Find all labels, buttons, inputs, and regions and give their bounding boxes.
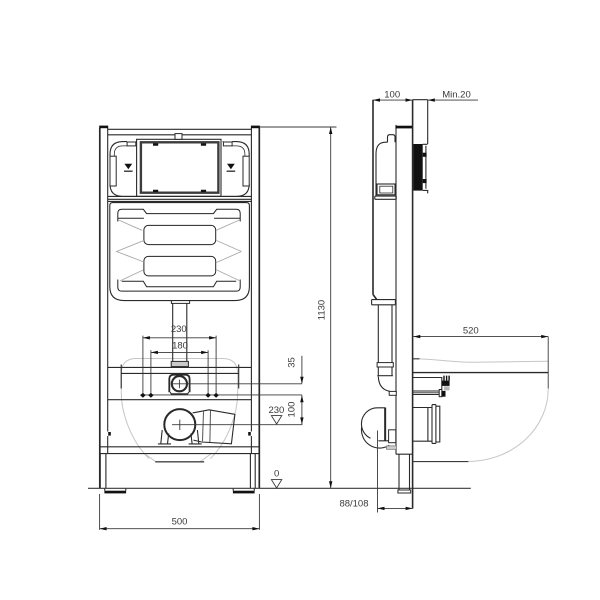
svg-text:Min.20: Min.20 [442,89,471,100]
svg-text:230: 230 [171,324,187,335]
svg-text:100: 100 [287,402,298,418]
svg-text:35: 35 [287,357,298,368]
svg-text:230: 230 [268,405,284,416]
svg-text:1130: 1130 [317,300,328,320]
svg-text:0: 0 [274,469,279,480]
svg-text:100: 100 [384,89,400,100]
svg-text:500: 500 [172,517,188,528]
svg-text:88/108: 88/108 [339,498,368,509]
svg-text:180: 180 [172,340,188,351]
svg-text:520: 520 [463,326,479,337]
